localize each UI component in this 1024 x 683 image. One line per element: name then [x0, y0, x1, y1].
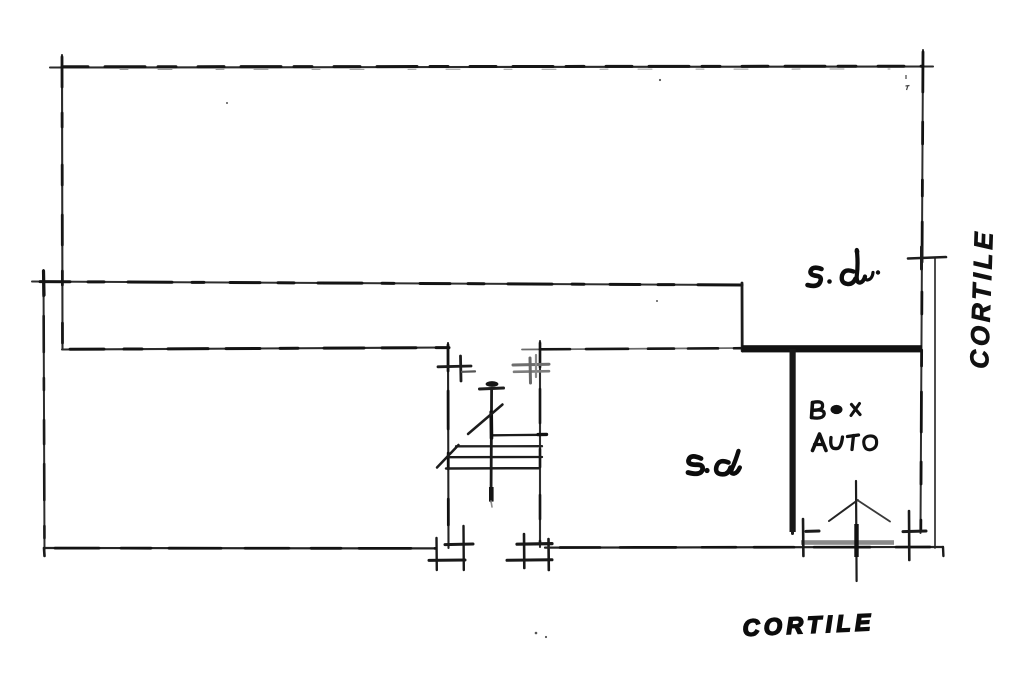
svg-text:CORTILE: CORTILE: [964, 228, 999, 369]
